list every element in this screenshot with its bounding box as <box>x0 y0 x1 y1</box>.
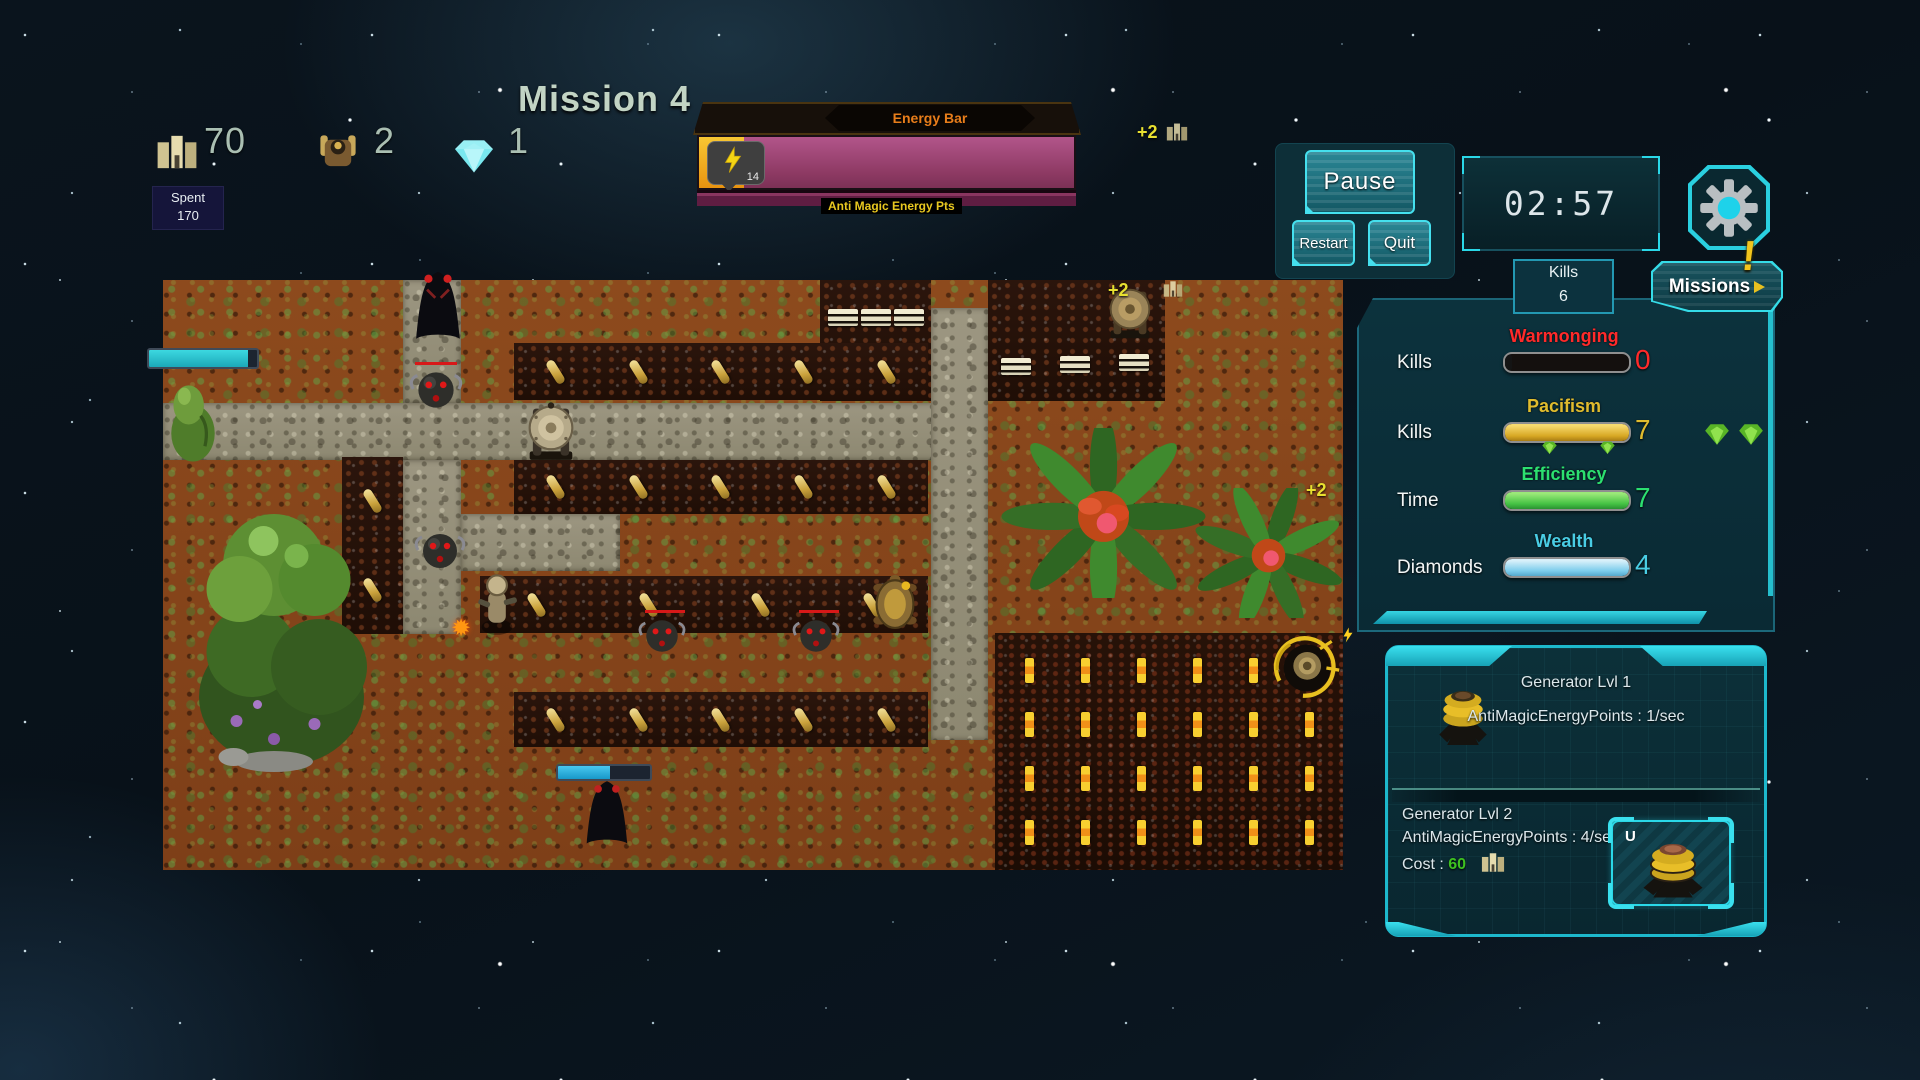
missions-button-label: Missions <box>1669 276 1750 298</box>
crop-dash-item <box>1305 712 1314 737</box>
map-canvas[interactable]: ✹ <box>163 280 1343 870</box>
stat-value: 0 <box>1635 344 1651 376</box>
map-path-segment <box>461 514 620 571</box>
spent-badge: Spent 170 <box>152 186 224 230</box>
muzzle-flash: ✹ <box>451 614 471 643</box>
crop-dash-item <box>1025 658 1034 683</box>
wheat-item <box>876 474 897 501</box>
stat-bar-fill <box>1505 354 1512 371</box>
enemy-slime <box>168 370 218 466</box>
corner-accent <box>1462 156 1480 174</box>
restart-button-label: Restart <box>1299 235 1347 252</box>
wheat-item <box>545 706 566 733</box>
stat-bar-fill <box>1505 559 1629 576</box>
stat-row-label: Time <box>1397 490 1439 512</box>
crop-item <box>1060 356 1090 373</box>
stat-row-efficiency: Time Efficiency 7 <box>1359 464 1773 526</box>
wheat-item <box>545 474 566 501</box>
generator-lvl2-icon <box>1641 836 1705 905</box>
enemy-cloaked-creature <box>579 780 635 846</box>
panel-corner-accent <box>1386 922 1456 936</box>
corner-accent <box>1642 156 1660 174</box>
crop-dash-item <box>1081 820 1090 845</box>
generator-next-info: AntiMagicEnergyPoints : 4/sec <box>1402 829 1619 847</box>
wheat-item <box>627 474 648 501</box>
stat-title: Pacifism <box>1481 396 1647 417</box>
upgrade-generator-button[interactable]: U <box>1611 820 1731 906</box>
crop-dash-item <box>1025 766 1034 791</box>
kills-badge: Kills 6 <box>1513 259 1614 314</box>
stat-row-label: Kills <box>1397 422 1432 444</box>
wheat-item <box>710 474 731 501</box>
enemy-spider-turret <box>413 528 467 574</box>
crop-dash-item <box>1081 766 1090 791</box>
crop-dash-item <box>1193 712 1202 737</box>
crop-dash-item <box>1081 658 1090 683</box>
mission-stats-panel: Kills Warmonging 0 Kills Pacifism 7 <box>1357 298 1775 632</box>
wheat-item <box>627 706 648 733</box>
crop-dash-item <box>1193 820 1202 845</box>
bush-decoration <box>191 472 387 772</box>
game-screen: 70 2 1 Spent 170 Mission 4 Energy Bar <box>0 0 1920 1080</box>
stat-row-warmonging: Kills Warmonging 0 <box>1359 326 1773 388</box>
crop-item <box>1119 354 1149 371</box>
crop-dash-item <box>1081 712 1090 737</box>
gold-icon <box>1163 280 1183 298</box>
map-wheat-row <box>480 576 928 633</box>
kills-badge-value: 6 <box>1515 285 1612 309</box>
flower-plant <box>1001 428 1206 598</box>
stat-bar <box>1503 352 1631 373</box>
quit-button-label: Quit <box>1384 233 1415 253</box>
creature-health-bar <box>556 764 652 781</box>
generator-cost: Cost : 60 <box>1402 852 1505 878</box>
gold-icon <box>1166 122 1188 142</box>
crop-dash-item <box>1137 766 1146 791</box>
map-wheat-row <box>514 692 928 747</box>
energy-tooltip-value: 14 <box>747 171 759 183</box>
crop-dash-item <box>1193 658 1202 683</box>
stat-bar <box>1503 557 1631 578</box>
crop-dash-item <box>1137 658 1146 683</box>
flower-plant <box>1191 488 1346 618</box>
energy-tooltip: 14 <box>707 141 765 185</box>
energy-bar-title: Energy Bar <box>825 105 1035 131</box>
energy-bar-track: 14 <box>697 135 1076 190</box>
lightning-icon <box>718 145 748 180</box>
gold-icon <box>1481 852 1505 878</box>
wheat-item <box>749 591 770 618</box>
gem-icon <box>1737 422 1765 446</box>
stat-title: Wealth <box>1481 531 1647 552</box>
map-wheat-row <box>514 343 928 400</box>
gem-icon <box>1599 440 1616 455</box>
upgrade-hotkey-label: U <box>1625 828 1636 845</box>
crop-dash-item <box>1025 820 1034 845</box>
crop-item <box>828 309 858 326</box>
enemy-spider-turret <box>791 614 841 658</box>
crop-item <box>1001 358 1031 375</box>
health-bar-fill <box>558 766 610 779</box>
stat-value: 7 <box>1635 414 1651 446</box>
button-corner-accent <box>1608 883 1634 909</box>
wheat-item <box>710 358 731 385</box>
crop-dash-item <box>1249 712 1258 737</box>
bonus-popup: +2 <box>1108 280 1129 301</box>
mission-timer: 02:57 <box>1462 156 1660 251</box>
diamond-icon <box>452 136 496 174</box>
crop-item <box>861 309 891 326</box>
spent-value: 170 <box>153 207 223 225</box>
crop-dash-item <box>1193 766 1202 791</box>
creature-health-bar <box>147 348 259 369</box>
crop-dash-item <box>1137 712 1146 737</box>
diamond-amount: 1 <box>508 120 529 162</box>
health-bar-fill <box>149 350 248 367</box>
stat-bar <box>1503 490 1631 511</box>
crop-dash-item <box>1305 766 1314 791</box>
stat-row-wealth: Diamonds Wealth 4 <box>1359 531 1773 593</box>
wheat-item <box>627 358 648 385</box>
stat-title: Warmonging <box>1481 326 1647 347</box>
timer-value: 02:57 <box>1504 184 1618 223</box>
unit-turtle <box>869 570 921 636</box>
crop-dash-item <box>1137 820 1146 845</box>
spent-label: Spent <box>153 189 223 207</box>
gem-icon <box>1541 440 1558 455</box>
gold-icon <box>156 132 198 172</box>
enemy-spider-turret <box>408 366 464 414</box>
panel-corner-accent <box>1386 646 1512 666</box>
wheat-item <box>793 474 814 501</box>
corner-accent <box>1642 233 1660 251</box>
gold-amount: 70 <box>204 120 246 162</box>
energy-bar: Energy Bar 14 Anti Magic Energy Pts <box>693 102 1081 220</box>
cost-label: Cost : <box>1402 856 1444 873</box>
wheat-item <box>876 358 897 385</box>
stat-bar-fill <box>1505 492 1629 509</box>
enemy-health-line <box>799 610 839 613</box>
stat-value: 7 <box>1635 482 1651 514</box>
pause-button[interactable]: Pause <box>1305 150 1415 214</box>
wheat-item <box>876 706 897 733</box>
gem-icon <box>1703 422 1731 446</box>
generator-next-title: Generator Lvl 2 <box>1402 806 1512 824</box>
enemy-health-line <box>645 610 685 613</box>
unit-knight <box>475 572 519 636</box>
wheat-item <box>793 358 814 385</box>
stat-row-pacifism: Kills Pacifism 7 <box>1359 396 1773 458</box>
stat-title: Efficiency <box>1481 464 1647 485</box>
mission-title: Mission 4 <box>518 78 691 120</box>
map-wheat-row <box>514 460 928 514</box>
restart-button[interactable]: Restart <box>1292 220 1355 266</box>
crop-dash-item <box>1249 820 1258 845</box>
tower-cannon[interactable] <box>523 398 579 462</box>
missions-button[interactable]: Missions <box>1651 261 1783 312</box>
kills-badge-label: Kills <box>1515 261 1612 285</box>
generator-current-title: Generator Lvl 1 <box>1388 674 1764 692</box>
bonus-popup: +2 <box>1137 122 1158 143</box>
enemy-spider-turret <box>637 614 687 658</box>
generator-tower-selected[interactable] <box>1265 636 1343 700</box>
stat-row-label: Diamonds <box>1397 557 1483 579</box>
stat-row-label: Kills <box>1397 352 1432 374</box>
pause-panel: Pause Restart Quit <box>1275 143 1455 279</box>
crop-dash-item <box>1249 766 1258 791</box>
cost-value: 60 <box>1448 856 1466 873</box>
panel-bottom-accent <box>1373 611 1707 624</box>
spark-icon <box>1339 624 1357 646</box>
energy-bar-caption: Anti Magic Energy Pts <box>821 198 962 214</box>
generator-info-panel: Generator Lvl 1 AntiMagicEnergyPoints : … <box>1385 645 1767 937</box>
arrow-right-icon <box>1754 281 1765 293</box>
generator-current-info: AntiMagicEnergyPoints : 1/sec <box>1388 708 1764 726</box>
panel-divider <box>1392 788 1760 802</box>
crop-dash-item <box>1025 712 1034 737</box>
wheat-item <box>710 706 731 733</box>
button-corner-accent <box>1708 817 1734 843</box>
wheat-item <box>793 706 814 733</box>
panel-corner-accent <box>1640 646 1766 666</box>
corner-accent <box>1462 233 1480 251</box>
stat-bar-fill <box>1505 424 1629 441</box>
wheat-item <box>525 591 546 618</box>
pause-button-label: Pause <box>1323 168 1396 196</box>
unit-amount: 2 <box>374 120 395 162</box>
crop-dash-item <box>1305 820 1314 845</box>
quit-button[interactable]: Quit <box>1368 220 1431 266</box>
stat-value: 4 <box>1635 549 1651 581</box>
bonus-popup: +2 <box>1306 480 1327 501</box>
button-corner-accent <box>1708 883 1734 909</box>
enemy-cloaked-creature <box>408 270 468 342</box>
unit-icon <box>316 128 360 172</box>
enemy-health-line <box>415 362 457 365</box>
crop-item <box>894 309 924 326</box>
wheat-item <box>545 358 566 385</box>
crop-dash-item <box>1249 658 1258 683</box>
map-path-segment <box>931 308 988 740</box>
panel-corner-accent <box>1696 922 1766 936</box>
